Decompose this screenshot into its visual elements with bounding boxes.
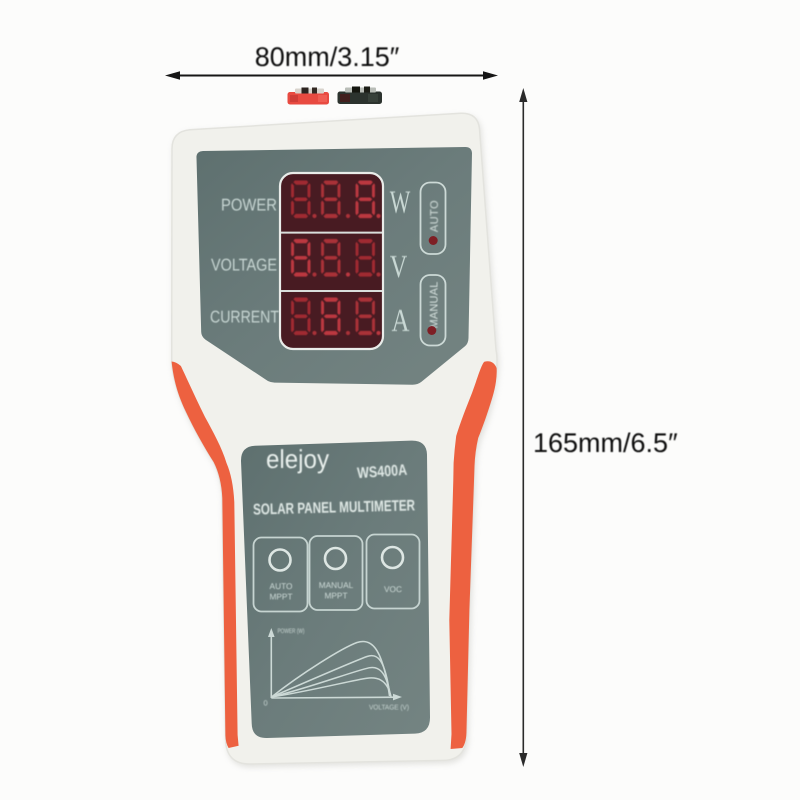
svg-text:VOLTAGE (V): VOLTAGE (V): [369, 704, 409, 712]
svg-text:V: V: [390, 248, 407, 284]
svg-text:VOLTAGE: VOLTAGE: [211, 256, 277, 275]
svg-text:MANUAL: MANUAL: [319, 580, 354, 590]
svg-text:MANUAL: MANUAL: [429, 281, 441, 328]
svg-text:AUTO: AUTO: [429, 200, 441, 232]
svg-text:POWER: POWER: [221, 196, 277, 215]
svg-text:MPPT: MPPT: [269, 592, 292, 602]
svg-text:0: 0: [264, 699, 268, 708]
svg-text:POWER (W): POWER (W): [278, 628, 305, 635]
svg-text:WS400A: WS400A: [357, 462, 408, 482]
svg-text:CURRENT: CURRENT: [210, 308, 279, 327]
svg-text:AUTO: AUTO: [270, 581, 293, 591]
svg-text:elejoy: elejoy: [266, 444, 329, 474]
svg-text:W: W: [390, 184, 411, 220]
svg-text:80mm/3.15″: 80mm/3.15″: [255, 42, 400, 72]
svg-text:165mm/6.5″: 165mm/6.5″: [533, 428, 678, 458]
svg-text:VOC: VOC: [384, 584, 402, 594]
svg-text:A: A: [391, 302, 409, 338]
svg-text:MPPT: MPPT: [324, 591, 347, 601]
